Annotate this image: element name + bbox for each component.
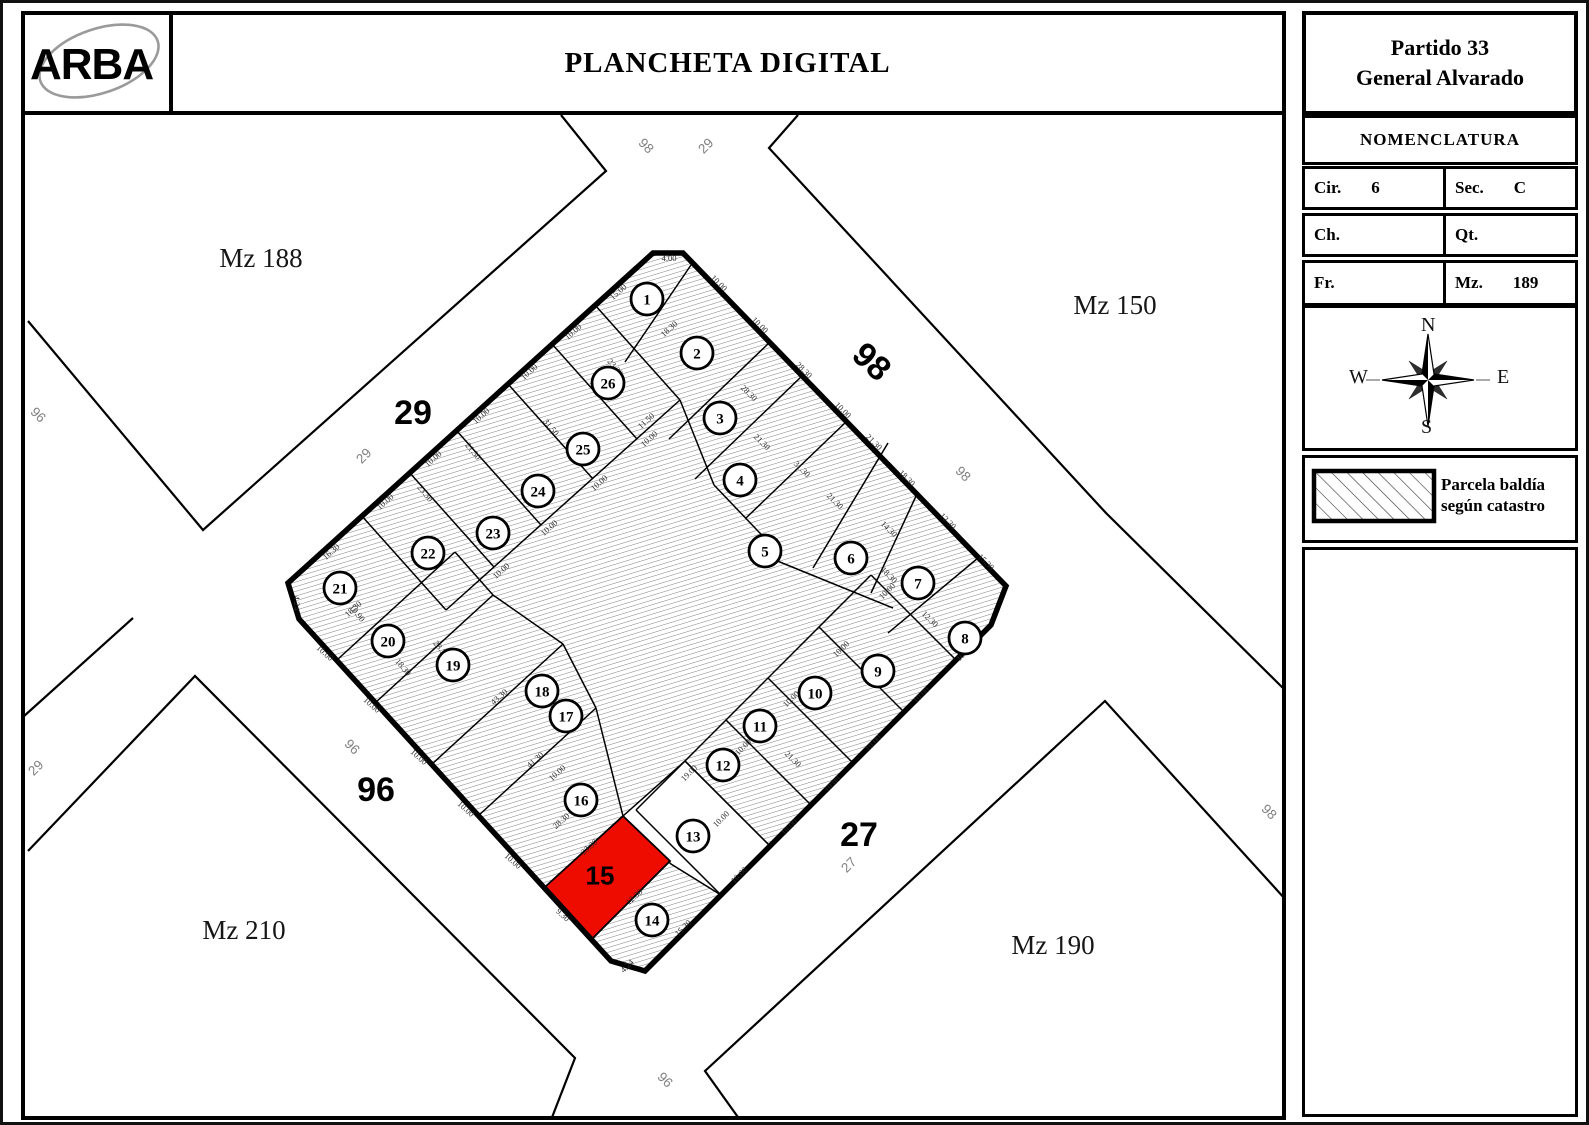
parcel-number-1: 1 [643, 292, 651, 308]
parcel-number-12: 12 [716, 758, 731, 774]
parcel-number-25: 25 [576, 442, 591, 458]
parcel-number-18: 18 [535, 684, 550, 700]
dimension-label: 4.24 [292, 596, 302, 612]
block-label-Mz-188: Mz 188 [219, 243, 302, 273]
field-cir-label: Cir. [1314, 178, 1341, 198]
sidebar-empty-panel [1302, 547, 1578, 1117]
street-number-98: 98 [1259, 801, 1280, 822]
parcel-number-19: 19 [446, 658, 461, 674]
field-qt: Qt. [1443, 213, 1578, 257]
street-number-29: 29 [695, 135, 716, 156]
legend-text: Parcela baldía según catastro [1441, 474, 1545, 517]
parcel-number-5: 5 [761, 544, 769, 560]
legend-line2: según catastro [1441, 495, 1545, 516]
street-number-bold-98: 98 [845, 335, 899, 389]
parcel-number-26: 26 [601, 376, 617, 392]
partido-line2: General Alvarado [1356, 65, 1524, 91]
parcel-number-15: 15 [586, 860, 615, 890]
compass-rose [1305, 308, 1575, 448]
parcel-number-13: 13 [686, 829, 701, 845]
arba-logo-text: ARBA [30, 40, 153, 89]
compass-n: N [1421, 314, 1435, 337]
parcel-number-22: 22 [421, 546, 436, 562]
parcel-number-2: 2 [693, 346, 701, 362]
parcel-number-10: 10 [808, 686, 823, 702]
legend-box: Parcela baldía según catastro [1302, 455, 1578, 543]
parcel-number-7: 7 [914, 576, 922, 592]
parcel-number-24: 24 [531, 484, 547, 500]
street-number-98: 98 [953, 463, 974, 484]
field-ch-label: Ch. [1314, 225, 1340, 245]
arba-logo-box: ARBA [21, 11, 173, 115]
street-number-96: 96 [28, 404, 49, 425]
partido-box: Partido 33 General Alvarado [1302, 11, 1578, 115]
parcel-number-20: 20 [381, 634, 396, 650]
parcel-number-6: 6 [847, 551, 855, 567]
compass-box: N S W E [1302, 305, 1578, 451]
parcel-number-17: 17 [559, 709, 575, 725]
block-label-Mz-150: Mz 150 [1073, 290, 1156, 320]
parcel-number-14: 14 [645, 913, 661, 929]
parcel-number-8: 8 [961, 631, 969, 647]
arba-logo: ARBA [25, 15, 169, 111]
field-cir-value: 6 [1371, 178, 1380, 198]
dimension-label: 4.00 [662, 253, 677, 263]
field-mz-label: Mz. [1455, 273, 1483, 293]
parcel-number-9: 9 [874, 664, 882, 680]
street-line-4 [23, 618, 133, 717]
street-number-29: 29 [25, 757, 46, 778]
field-fr-label: Fr. [1314, 273, 1335, 293]
parcel-number-11: 11 [753, 719, 767, 735]
cadastral-map: 15.0010.0010.0010.0010.0010.0016.304.001… [21, 111, 1286, 1120]
field-qt-label: Qt. [1455, 225, 1478, 245]
field-fr: Fr. [1302, 260, 1446, 306]
block-label-Mz-210: Mz 210 [202, 915, 285, 945]
nomenclatura-title: NOMENCLATURA [1302, 115, 1578, 165]
field-sec-value: C [1514, 178, 1526, 198]
street-number-27: 27 [838, 854, 859, 875]
parcel-number-4: 4 [736, 473, 744, 489]
compass-s: S [1421, 416, 1432, 439]
compass-w: W [1349, 366, 1368, 389]
field-cir: Cir. 6 [1302, 166, 1446, 210]
field-ch: Ch. [1302, 213, 1446, 257]
title-bar: PLANCHETA DIGITAL [169, 11, 1286, 115]
legend-hatch-swatch [1311, 468, 1439, 534]
compass-star-shading [1382, 334, 1474, 426]
street-number-bold-96: 96 [357, 771, 395, 809]
street-number-96: 96 [655, 1069, 676, 1090]
street-number-98: 98 [636, 135, 657, 156]
parcel-number-21: 21 [333, 581, 348, 597]
street-number-bold-29: 29 [394, 394, 432, 432]
field-mz-value: 189 [1513, 273, 1539, 293]
field-mz: Mz. 189 [1443, 260, 1578, 306]
parcel-number-23: 23 [486, 526, 501, 542]
parcel-number-16: 16 [574, 793, 590, 809]
field-sec: Sec. C [1443, 166, 1578, 210]
compass-e: E [1497, 366, 1509, 389]
nomenclatura-title-text: NOMENCLATURA [1360, 130, 1520, 150]
legend-line1: Parcela baldía [1441, 474, 1545, 495]
parcel-number-3: 3 [716, 411, 724, 427]
street-number-bold-27: 27 [840, 816, 878, 854]
partido-line1: Partido 33 [1391, 35, 1489, 61]
page-title: PLANCHETA DIGITAL [564, 47, 890, 80]
block-label-Mz-190: Mz 190 [1011, 930, 1094, 960]
field-sec-label: Sec. [1455, 178, 1484, 198]
plancheta-page: ARBA PLANCHETA DIGITAL Partido 33 Genera… [0, 0, 1589, 1125]
street-number-96: 96 [342, 736, 363, 757]
street-number-29: 29 [353, 445, 374, 466]
